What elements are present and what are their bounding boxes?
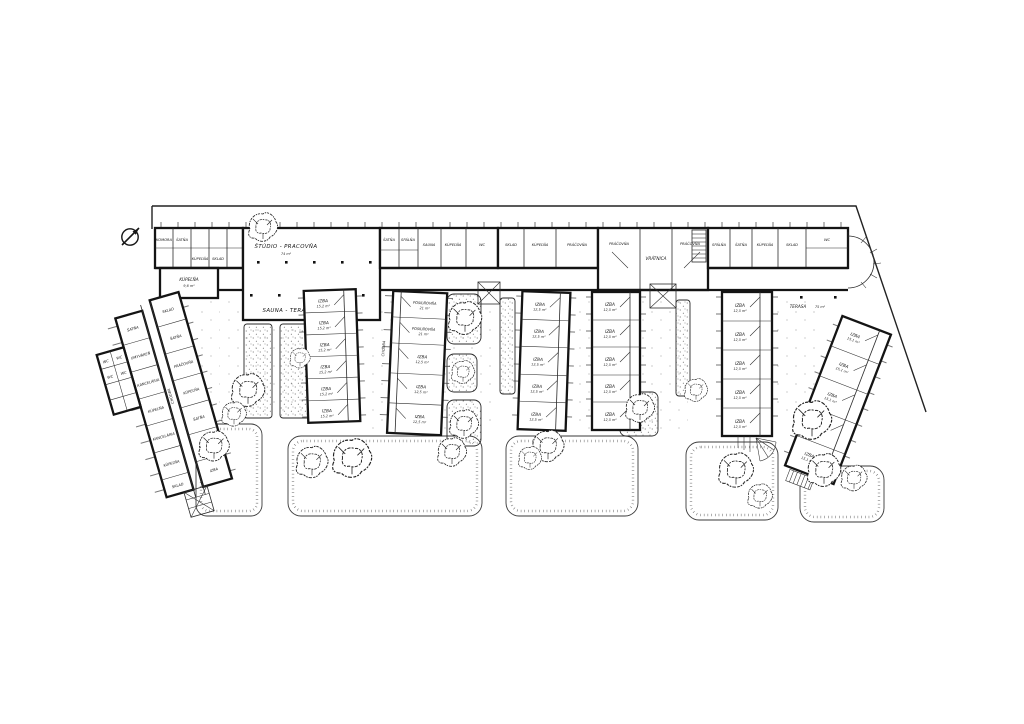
room-label: ŠATŇA xyxy=(735,242,747,247)
room-label: IZBA xyxy=(531,412,541,417)
wing-6: IZBA12,5 m² IZBA12,5 m² IZBA12,5 m² IZBA… xyxy=(716,292,778,461)
room-area: 12,5 m² xyxy=(414,390,428,395)
block-top-d: SKLAD KÚPEĽŇA PRÁČOVŇA xyxy=(498,228,598,268)
room-area: 12,5 m² xyxy=(531,363,545,367)
room-label: IZBA xyxy=(415,414,425,419)
room-label: PRÁČOVŇA xyxy=(609,241,630,246)
room-label: POSILŇOVŇA xyxy=(412,326,436,332)
room-label: IZBA xyxy=(535,302,545,307)
room-label: IZBA xyxy=(320,364,330,369)
room-label: POSILŇOVŇA xyxy=(413,300,437,306)
floor-plan-page: KOMORA ŠATŇA KÚPEĽŇA SKLAD KÚPEĽŇA 9,6 m… xyxy=(0,0,1024,724)
room-label: TERASA xyxy=(790,304,807,309)
room-label: IZBA xyxy=(321,386,331,391)
room-area: 12,5 m² xyxy=(529,418,543,422)
room-label: WC xyxy=(479,243,486,247)
room-label: KÚPEĽŇA xyxy=(179,277,198,282)
block-entrance: PRÁČOVŇA VRÁTNICA PRÁČOVŇA xyxy=(598,228,708,290)
room-label: SKLAD xyxy=(786,243,798,247)
room-label: KÚPEĽŇA xyxy=(445,242,462,247)
room-area: 12,5 m² xyxy=(603,308,617,312)
room-area: 74 m² xyxy=(281,252,292,256)
room-label: IZBA xyxy=(417,354,427,359)
room-label: SPÁLŇA xyxy=(712,242,726,247)
room-area: 12,5 m² xyxy=(733,396,747,400)
room-label: KOMORA xyxy=(156,238,173,242)
room-area: 9,6 m² xyxy=(183,284,195,288)
room-label: IZBA xyxy=(605,412,615,417)
room-area: 12,5 m² xyxy=(603,335,617,339)
room-label: SKLAD xyxy=(212,257,224,261)
room-area: 15,2 m² xyxy=(318,348,332,352)
tree-icon xyxy=(222,402,247,426)
room-area: 12,5 m² xyxy=(733,338,747,342)
room-area: 12,5 m² xyxy=(603,390,617,394)
room-area: 12,5 m² xyxy=(415,360,429,365)
room-label: IZBA xyxy=(318,298,328,303)
room-label: SAUNA xyxy=(423,243,436,247)
block-top-f: SPÁLŇA ŠATŇA KÚPEĽŇA SKLAD WC xyxy=(708,228,848,268)
room-label: IZBA xyxy=(322,408,332,413)
room-label: IZBA xyxy=(735,303,745,308)
room-label: ŠATŇA xyxy=(383,237,395,242)
room-area: 12,5 m² xyxy=(413,420,427,425)
room-area: 12,5 m² xyxy=(603,363,617,367)
room-label: IZBA xyxy=(605,357,615,362)
room-area: 12,5 m² xyxy=(530,390,544,394)
room-area: 12,5 m² xyxy=(733,367,747,371)
room-area: 15,2 m² xyxy=(319,370,333,374)
room-label: IZBA xyxy=(534,329,544,334)
room-label: IZBA xyxy=(605,302,615,307)
room-label: KÚPEĽŇA xyxy=(532,242,549,247)
room-label: IZBA xyxy=(532,384,542,389)
room-label: IZBA xyxy=(319,320,329,325)
room-label: IZBA xyxy=(735,332,745,337)
room-area: 12,5 m² xyxy=(603,418,617,422)
room-area: 12,5 m² xyxy=(533,308,547,312)
wing-3: POSILŇOVŇA21 m² POSILŇOVŇA21 m² IZBA12,5… xyxy=(378,291,453,436)
room-area: 15,2 m² xyxy=(317,326,331,330)
room-label: KÚPEĽŇA xyxy=(192,256,209,261)
room-area: 21 m² xyxy=(419,306,430,310)
room-label: IZBA xyxy=(735,361,745,366)
floor-plan-drawing: KOMORA ŠATŇA KÚPEĽŇA SKLAD KÚPEĽŇA 9,6 m… xyxy=(0,0,1024,724)
room-label: IZBA xyxy=(533,357,543,362)
room-label: ŠATŇA xyxy=(176,237,188,242)
room-label: IZBA xyxy=(735,419,745,424)
tree-icon xyxy=(684,379,707,402)
room-area: 12,5 m² xyxy=(733,309,747,313)
room-label: KÚPEĽŇA xyxy=(757,242,774,247)
room-label: IZBA xyxy=(605,384,615,389)
room-label: VRÁTNICA xyxy=(645,256,666,261)
room-label: IZBA xyxy=(416,384,426,389)
wing-4: IZBA12,5 m² IZBA12,5 m² IZBA12,5 m² IZBA… xyxy=(512,291,577,431)
room-area: 15,2 m² xyxy=(320,414,334,418)
room-area: 75 m² xyxy=(815,305,826,309)
room-label: IZBA xyxy=(320,342,330,347)
room-area: 21 m² xyxy=(418,332,429,336)
room-area: 15,2 m² xyxy=(317,304,331,308)
block-bath-left: KÚPEĽŇA 9,6 m² xyxy=(160,268,218,298)
room-label: PRÁČOVŇA xyxy=(567,242,588,247)
room-label: ŠTÚDIO - PRACOVŇA xyxy=(255,243,318,250)
room-label: SKLAD xyxy=(505,243,517,247)
north-arrow-icon xyxy=(122,228,139,245)
room-label: IZBA xyxy=(735,390,745,395)
room-label: WC xyxy=(824,238,831,242)
room-area: 12,5 m² xyxy=(733,425,747,429)
block-top-c: ŠATŇA SPÁLŇA SAUNA KÚPEĽŇA WC xyxy=(380,228,498,268)
room-label: SPÁLŇA xyxy=(401,237,415,242)
block-top-left: KOMORA ŠATŇA KÚPEĽŇA SKLAD xyxy=(155,228,243,268)
room-label: IZBA xyxy=(605,329,615,334)
room-area: 12,5 m² xyxy=(532,335,546,339)
room-area: 15,2 m² xyxy=(320,392,334,396)
